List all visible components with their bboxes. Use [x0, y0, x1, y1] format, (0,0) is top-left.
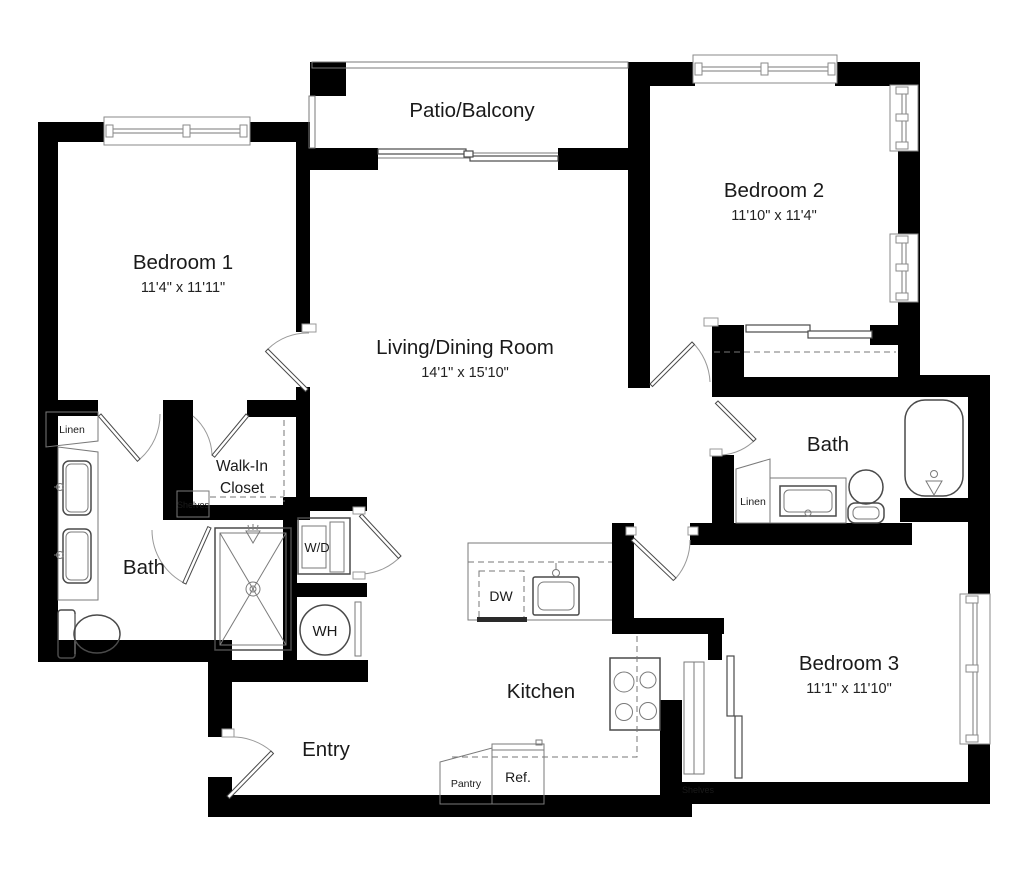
linen-main-label: Linen	[59, 424, 85, 436]
wall-segment	[870, 325, 920, 345]
laundry-door	[359, 514, 401, 574]
wall-segment	[612, 523, 634, 634]
stove-icon	[610, 658, 660, 730]
entry-door	[227, 737, 274, 799]
patio-label: Patio/Balcony	[409, 99, 535, 122]
door-jamb	[353, 572, 365, 579]
closet-door-panel	[735, 716, 742, 778]
door-jamb	[704, 318, 718, 326]
wall-segment	[835, 62, 920, 86]
linen-closet-second	[736, 459, 770, 523]
wall-segment	[38, 400, 98, 416]
bath-second-label: Bath	[807, 433, 849, 456]
wall-segment	[310, 62, 346, 96]
bedroom2-dimensions: 11'10" x 11'4"	[731, 208, 816, 224]
shelves-bedroom3-label: Shelves	[682, 785, 715, 795]
wall-segment	[968, 518, 990, 598]
wall-segment	[690, 523, 912, 545]
linen-second-label: Linen	[740, 496, 766, 508]
living-dining-dimensions: 14'1" x 15'10"	[421, 365, 509, 381]
entry-label: Entry	[302, 738, 351, 761]
bedroom1-bath-door	[98, 414, 160, 461]
wall-segment	[208, 795, 692, 817]
wall-segment	[208, 640, 232, 737]
wall-segment	[708, 632, 722, 660]
vanity-main	[58, 447, 98, 600]
kitchen-sink-icon	[533, 563, 579, 615]
dishwasher-label: DW	[489, 588, 513, 604]
wall-segment	[283, 497, 297, 597]
patio-sliding-door	[378, 149, 558, 161]
wall-segment	[283, 583, 367, 597]
walk-in-closet-label-line1: Walk-In	[216, 458, 268, 475]
bedroom3-dimensions: 11'1" x 11'10"	[806, 681, 891, 697]
wall-segment	[712, 377, 990, 397]
bath-second-door	[715, 401, 756, 455]
door-jamb	[353, 507, 365, 514]
bathtub-icon	[905, 400, 963, 496]
wall-segment	[310, 148, 378, 170]
vanity-second	[770, 478, 846, 523]
door-jamb	[688, 527, 698, 535]
wall-segment	[38, 122, 58, 662]
bedroom1-window	[104, 117, 250, 145]
sink-icon	[54, 461, 91, 515]
wall-segment	[968, 742, 990, 804]
walk-in-closet-door	[193, 414, 249, 457]
floor-plan: Patio/Balcony Bedroom 1 11'4" x 11'11" B…	[0, 0, 1024, 878]
bedroom2-label: Bedroom 2	[724, 179, 824, 202]
pantry-label: Pantry	[451, 778, 482, 790]
doors	[98, 318, 756, 799]
kitchen-label: Kitchen	[507, 680, 575, 703]
wall-segment	[296, 142, 310, 332]
bedroom3-door	[631, 538, 690, 581]
door-jamb	[626, 527, 636, 535]
toilet-icon	[848, 470, 884, 523]
door-jamb	[302, 324, 316, 332]
bedroom3-window	[960, 594, 990, 744]
bedroom2-side-window-lower	[890, 234, 918, 302]
bedroom3-label: Bedroom 3	[799, 652, 899, 675]
bedroom1-label: Bedroom 1	[133, 251, 233, 274]
bath-main-label: Bath	[123, 556, 165, 579]
floor-plan-svg: Patio/Balcony Bedroom 1 11'4" x 11'11" B…	[0, 0, 1024, 878]
bedroom2-top-window	[693, 55, 837, 83]
washer-dryer-label: W/D	[304, 540, 329, 555]
wall-segment	[612, 618, 724, 634]
wall-segment	[712, 455, 734, 523]
shower-icon	[215, 524, 291, 650]
wall-segment	[208, 660, 368, 682]
wall-segment	[628, 62, 650, 388]
water-heater-label: WH	[313, 623, 338, 640]
bedroom2-door	[650, 342, 710, 387]
water-heater-door	[355, 602, 361, 656]
sink-icon	[54, 529, 91, 583]
closet-door-panel	[727, 656, 734, 716]
bedroom2-side-window-upper	[890, 85, 918, 151]
wall-segment	[558, 148, 628, 170]
door-jamb	[710, 449, 722, 456]
wall-segment	[900, 498, 990, 522]
shelves-closet-label: Shelves	[177, 500, 210, 510]
kitchen-island	[468, 543, 612, 622]
bedroom3-closet	[684, 656, 742, 778]
bedroom1-dimensions: 11'4" x 11'11"	[141, 280, 225, 296]
walk-in-closet-label-line2: Closet	[220, 480, 265, 497]
refrigerator-label: Ref.	[505, 769, 531, 785]
living-dining-label: Living/Dining Room	[376, 336, 554, 359]
door-jamb	[222, 729, 234, 737]
bedroom1-door	[266, 333, 310, 392]
wall-segment	[248, 122, 310, 142]
